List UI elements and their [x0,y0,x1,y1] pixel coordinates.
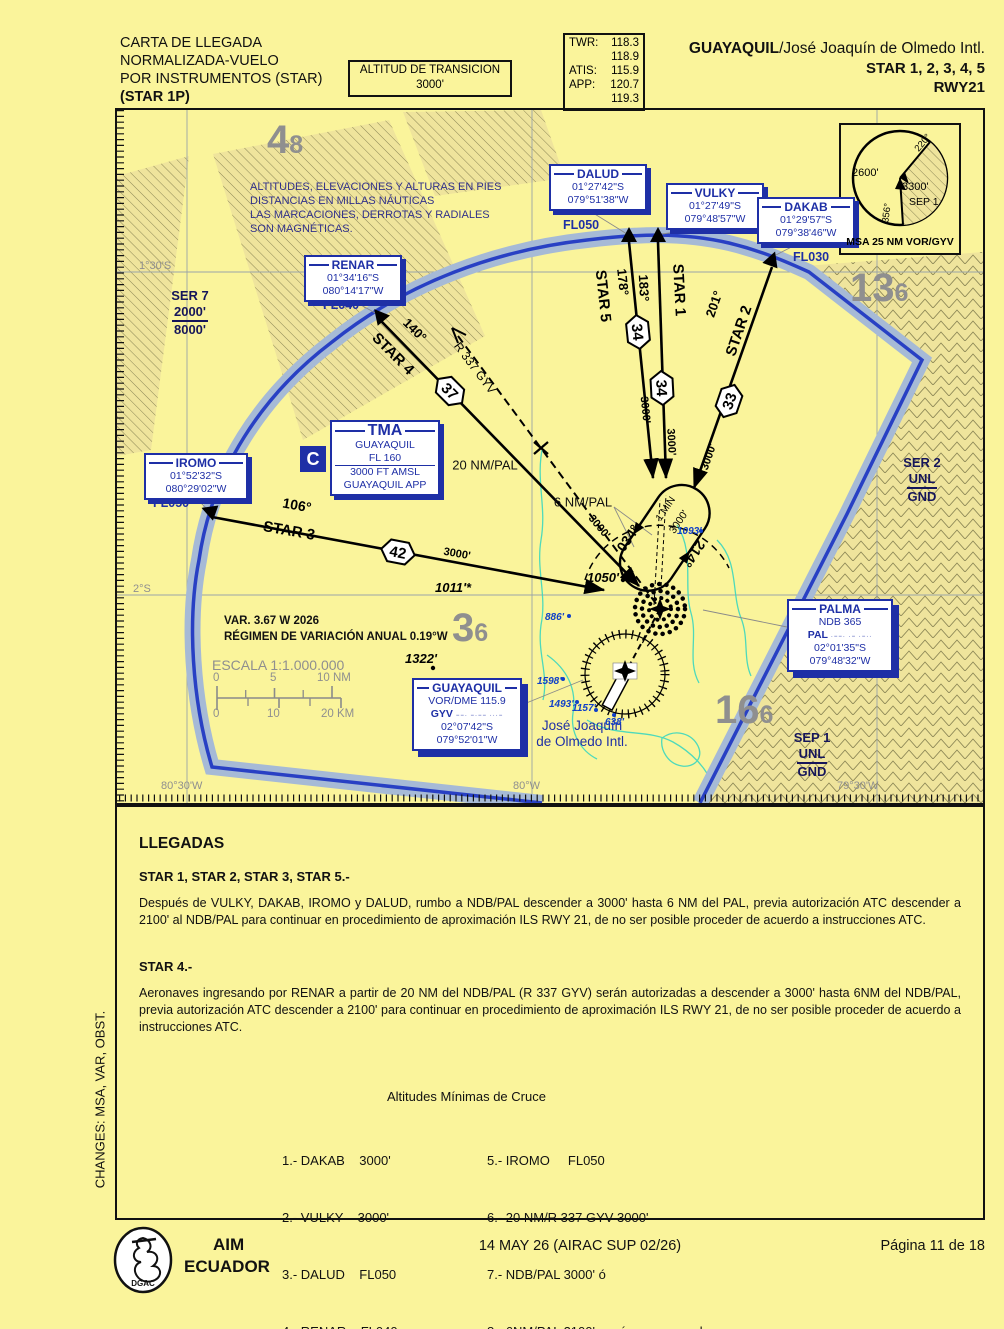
navaid-box-gyv: GUAYAQUIL VOR/DME 115.9 GYV −−· −·−− ···… [412,678,522,751]
tma-class-badge: C [300,446,326,472]
tma-line2: FL 160 [335,452,435,465]
grid-lon3: 79°30'W [837,780,878,792]
variation-line2: RÉGIMEN DE VARIACIÓN ANUAL 0.19°W [224,631,448,643]
renar-lon: 080°14'17"W [309,285,397,298]
spot-1093: 1093' [677,526,702,537]
spot-638: 638' [605,717,624,728]
dgac-logo: DGAC [112,1226,174,1294]
waypoint-box-renar: RENAR 01°34'16"S 080°14'17"W [304,255,402,302]
changes-note: CHANGES: MSA, VAR, OBST. [93,968,108,1232]
transition-altitude-label: ALTITUD DE TRANSICION [350,63,510,78]
title-line2: NORMALIZADA-VUELO [120,52,322,70]
waypoint-box-dalud: DALUD 01°27'42"S 079°51'38"W [549,164,647,211]
palma-ident-row: PAL ·−−· ·− ·−·· [792,629,888,642]
procedure-text-box: LLEGADAS STAR 1, STAR 2, STAR 3, STAR 5.… [115,805,985,1220]
star5-distance: 34 [628,323,647,342]
footer-date: 14 MAY 26 (AIRAC SUP 02/26) [430,1238,730,1254]
msa-sector-label: SEP 1 [909,196,939,208]
tma-line3: 3000 FT AMSL [335,465,435,479]
area-ser7: SER 7 2000' 8000' [145,288,235,338]
palma-title: PALMA [792,602,888,616]
waypoint-box-dakab: DAKAB 01°29'57"S 079°38'46"W [757,197,855,244]
palma-type: NDB 365 [792,616,888,629]
spot-1011: 1011'* [435,580,471,595]
min-altitudes-col2: 5.- IROMO FL050 6.- 20 NM/R 337 GYV 3000… [487,1113,710,1329]
app-label: APP: [569,78,595,92]
tma-line4: GUAYAQUIL APP [335,479,435,492]
twr-freq-2: 118.9 [569,50,639,64]
tma-info-box: TMA GUAYAQUIL FL 160 3000 FT AMSL GUAYAQ… [330,420,440,496]
min-alt-4: 4.- RENAR FL040 [282,1322,398,1329]
mora-sw: 36 [452,606,488,651]
tma-line1: GUAYAQUIL [335,439,435,452]
scale-km10: 10 [267,708,280,720]
area-ser2: SER 2 UNL GND [892,455,952,505]
min-alt-2: 2.- VULKY 3000' [282,1208,398,1227]
scale-nm0: 0 [213,672,219,684]
dakab-lon: 079°38'46"W [762,227,850,240]
spot-1157: 1157' [572,703,596,714]
min-alt-8: 8.- 6NM/PAL 2100' según corresponda [487,1322,710,1329]
scale-km20: 20 KM [321,708,354,720]
note-line3: LAS MARCACIONES, DERROTAS Y RADIALES [250,208,501,222]
spot-1598: 1598' [537,676,562,687]
dalud-lon: 079°51'38"W [554,194,642,207]
star1-course: 183° [636,274,652,302]
star1-distance: 34 [652,379,670,397]
spot-1493: 1493' [549,699,574,710]
map-note: ALTITUDES, ELEVACIONES Y ALTURAS EN PIES… [250,180,501,236]
navaid-box-palma: PALMA NDB 365 PAL ·−−· ·− ·−·· 02°01'35"… [787,599,893,672]
footer-org-ecuador: ECUADOR [184,1257,270,1277]
msa-alt-west: 2600' [852,167,879,179]
iromo-lon: 080°29'02"W [149,483,243,496]
atis-label: ATIS: [569,64,597,78]
scale-title: ESCALA 1:1.000.000 [212,657,344,673]
holding-pattern [585,471,729,607]
renar-title: RENAR [309,258,397,272]
tma-title: TMA [335,423,435,439]
scale-nm5: 5 [270,672,276,684]
mora-se: 166 [715,688,773,733]
gyv-lat: 02°07'42"S [417,721,517,734]
iromo-title: IROMO [149,456,243,470]
dalud-lat: 01°27'42"S [554,181,642,194]
chart-title-block: CARTA DE LLEGADA NORMALIZADA-VUELO POR I… [120,34,322,106]
dakab-lat: 01°29'57"S [762,214,850,227]
stars-subheading-1: STAR 1, STAR 2, STAR 3, STAR 5.- [139,869,350,884]
min-alt-3: 3.- DALUD FL050 [282,1265,398,1284]
min-alt-5: 5.- IROMO FL050 [487,1151,710,1170]
note-line4: SON MAGNÉTICAS. [250,222,501,236]
twr-freq-1: 118.3 [611,36,639,50]
app-freq-1: 120.7 [610,78,639,92]
msa-caption: MSA 25 NM VOR/GYV [844,236,956,248]
transition-altitude-value: 3000' [350,78,510,93]
runway-line: RWY21 [689,79,985,96]
star3-distance: 42 [388,543,408,563]
airport-name-bold: GUAYAQUIL [689,40,779,57]
dakab-fl: FL030 [793,250,829,264]
frequency-box: TWR:118.3 118.9 ATIS:115.9 APP:120.7 119… [563,33,645,111]
note-line2: DISTANCIAS EN MILLAS NÁUTICAS [250,194,501,208]
stars-line: STAR 1, 2, 3, 4, 5 [689,60,985,77]
min-alt-1: 1.- DAKAB 3000' [282,1151,398,1170]
airport-name-rest: /José Joaquín de Olmedo Intl. [779,40,985,57]
footer-org-aim: AIM [213,1235,244,1255]
chart-page: CARTA DE LLEGADA NORMALIZADA-VUELO POR I… [0,0,1004,1329]
msa-alt-east: 3300' [902,181,929,193]
waypoint-box-vulky: VULKY 01°27'49"S 079°48'57"W [666,183,764,230]
title-line1: CARTA DE LLEGADA [120,34,322,52]
grid-lon2: 80°W [513,780,540,792]
airport-name-label: José Joaquín de Olmedo Intl. [512,718,652,750]
footer-page-number: Página 11 de 18 [880,1238,985,1254]
stars-subheading-2: STAR 4.- [139,959,192,974]
min-alt-7: 7.- NDB/PAL 3000' ó [487,1265,710,1284]
twr-label: TWR: [569,36,598,50]
ndb-beacon [635,584,685,634]
grid-lat1: 1°30'S [139,260,171,272]
chart-map: 34 34 33 37 42 [115,108,985,805]
renar-lat: 01°34'16"S [309,272,397,285]
airport-symbol [585,634,665,714]
dalud-fl: FL050 [563,218,599,232]
msa-box [840,124,960,254]
title-line3: POR INSTRUMENTOS (STAR) [120,70,322,88]
scale-bar [217,686,341,710]
mora-nw: 48 [267,118,303,163]
vulky-lon: 079°48'57"W [671,213,759,226]
spot-886: 886' [545,612,564,623]
spot-1050: 1050' [587,570,619,585]
vulky-title: VULKY [671,186,759,200]
grid-lat2: 2°S [133,583,151,595]
app-freq-2: 119.3 [569,92,639,106]
palma-lon: 079°48'32"W [792,655,888,668]
iromo-lat: 01°52'32"S [149,470,243,483]
variation-line1: VAR. 3.67 W 2026 [224,615,319,627]
gyv-title: GUAYAQUIL [417,681,517,695]
airport-header: GUAYAQUIL/José Joaquín de Olmedo Intl. S… [689,40,985,96]
vulky-lat: 01°27'49"S [671,200,759,213]
gyv-lon: 079°52'01"W [417,734,517,747]
atis-freq: 115.9 [611,64,639,78]
dalud-title: DALUD [554,167,642,181]
gyv-type: VOR/DME 115.9 [417,695,517,708]
grid-lon1: 80°30'W [161,780,202,792]
spot-1322: 1322' [405,651,437,666]
llegadas-heading: LLEGADAS [139,835,224,853]
title-procedure-id: (STAR 1P) [120,88,322,106]
waypoint-box-iromo: IROMO 01°52'32"S 080°29'02"W [144,453,248,500]
star1-name: STAR 1 [669,263,689,316]
dakab-title: DAKAB [762,200,850,214]
min-altitudes-title: Altitudes Mínimas de Cruce [387,1089,546,1104]
min-altitudes-col1: 1.- DAKAB 3000' 2.- VULKY 3000' 3.- DALU… [282,1113,398,1329]
transition-altitude-box: ALTITUD DE TRANSICION 3000' [348,60,512,97]
area-sep1: SEP 1 UNL GND [782,730,842,780]
twenty-nm-label: 20 NM/PAL [452,458,518,473]
stars-paragraph-1: Después de VULKY, DAKAB, IROMO y DALUD, … [139,895,961,929]
scale-km0: 0 [213,708,219,720]
star1-alt: 3000' [664,428,677,456]
stars-paragraph-2: Aeronaves ingresando por RENAR a partir … [139,985,961,1036]
min-alt-6: 6.- 20 NM/R 337 GYV 3000' [487,1208,710,1227]
star5-course: 178° [614,268,632,296]
note-line1: ALTITUDES, ELEVACIONES Y ALTURAS EN PIES [250,180,501,194]
gyv-ident-row: GYV −−· −·−− ···− [417,708,517,721]
dgac-logo-text: DGAC [131,1279,155,1288]
scale-nm10: 10 NM [317,672,351,684]
six-nm-label: 6 NM/PAL [554,495,612,510]
palma-lat: 02°01'35"S [792,642,888,655]
mora-ne: 136 [850,266,908,311]
